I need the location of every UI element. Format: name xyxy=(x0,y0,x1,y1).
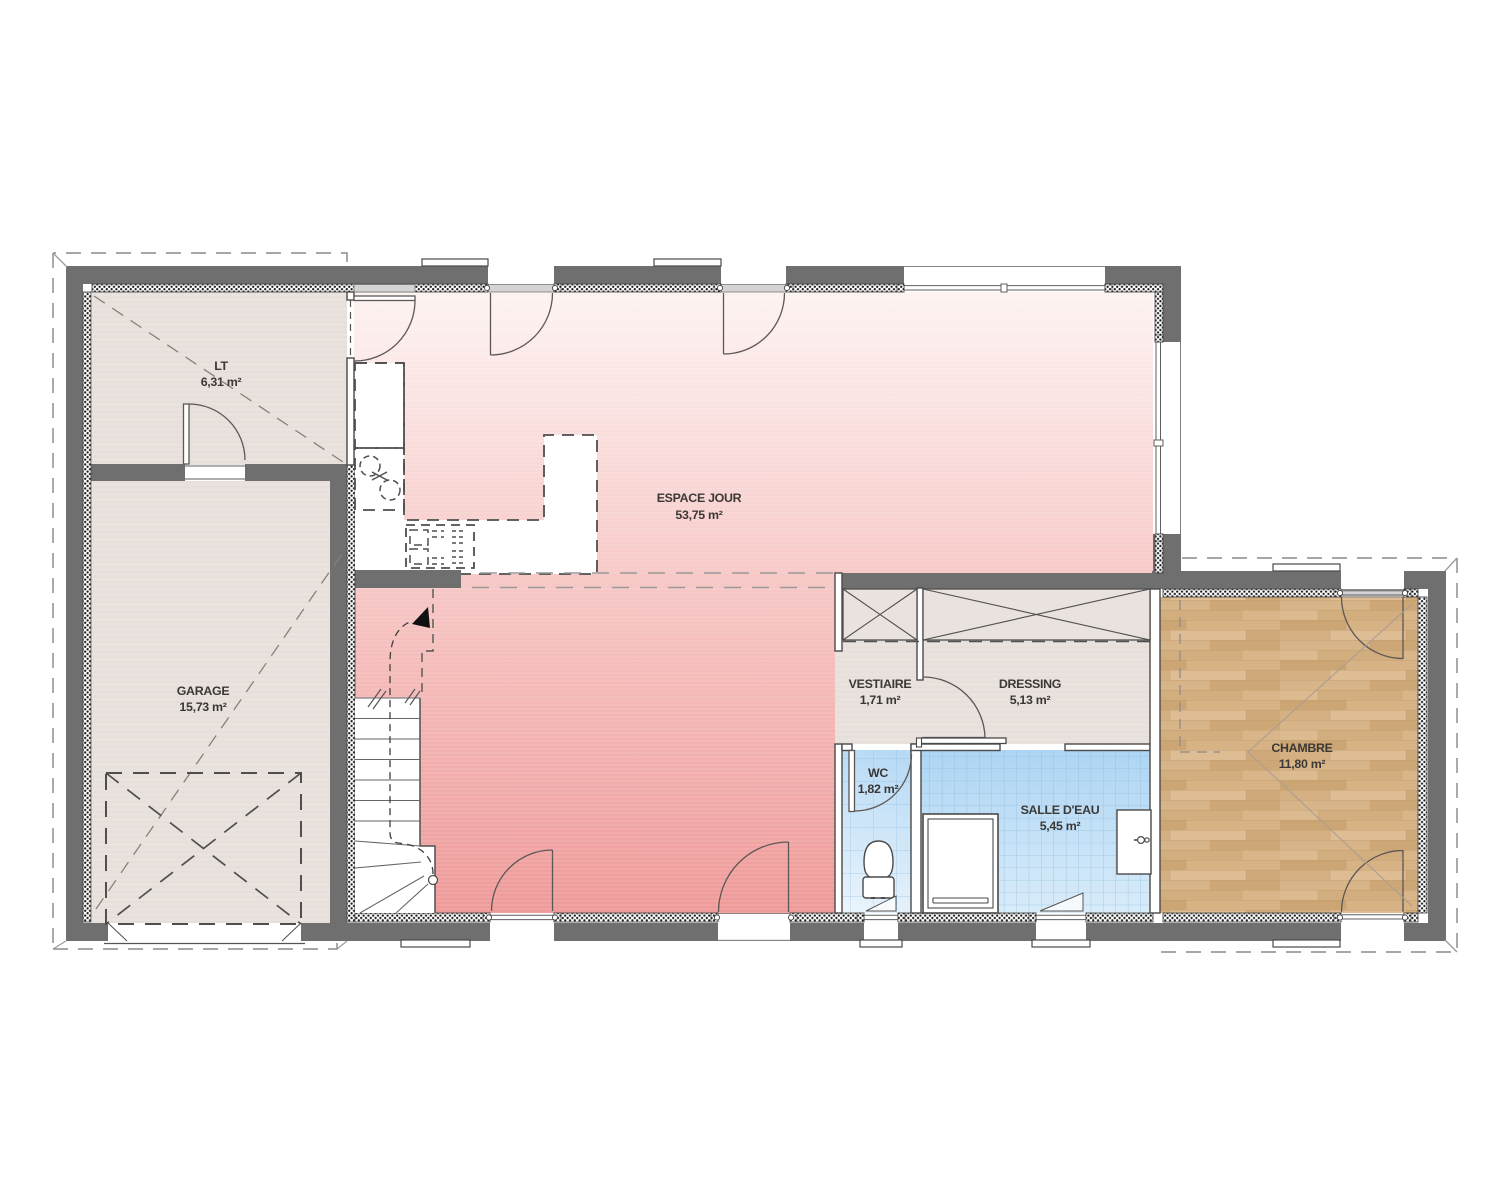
svg-text:1,82 m²: 1,82 m² xyxy=(858,782,899,796)
svg-text:ESPACE JOUR: ESPACE JOUR xyxy=(657,491,742,505)
svg-text:5,13 m²: 5,13 m² xyxy=(1010,693,1051,707)
svg-text:15,73 m²: 15,73 m² xyxy=(179,700,226,714)
svg-text:1,71 m²: 1,71 m² xyxy=(860,693,901,707)
svg-text:LT: LT xyxy=(214,359,228,373)
svg-text:SALLE D'EAU: SALLE D'EAU xyxy=(1021,803,1100,817)
svg-text:CHAMBRE: CHAMBRE xyxy=(1271,741,1332,755)
svg-text:5,45 m²: 5,45 m² xyxy=(1040,819,1081,833)
svg-text:WC: WC xyxy=(868,766,888,780)
svg-text:GARAGE: GARAGE xyxy=(177,684,230,698)
svg-text:VESTIAIRE: VESTIAIRE xyxy=(849,677,912,691)
svg-text:6,31 m²: 6,31 m² xyxy=(201,375,242,389)
svg-text:11,80 m²: 11,80 m² xyxy=(1279,757,1326,771)
svg-text:DRESSING: DRESSING xyxy=(999,677,1061,691)
svg-text:53,75 m²: 53,75 m² xyxy=(675,508,722,522)
